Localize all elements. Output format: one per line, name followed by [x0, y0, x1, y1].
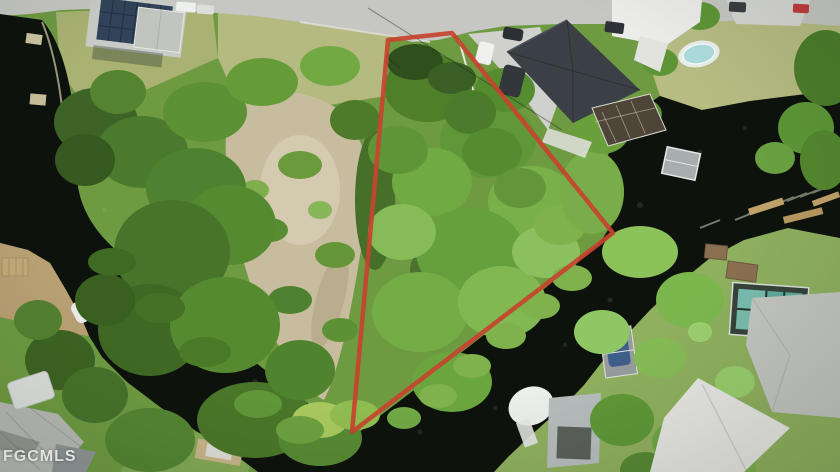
car-white: [197, 4, 215, 14]
neighbor-house-roof: [134, 7, 185, 52]
car-red: [793, 4, 809, 14]
aerial-photo-canvas: [0, 0, 840, 472]
bank-dock: [2, 258, 28, 276]
car-dark: [729, 2, 747, 13]
wood-dock: [704, 244, 727, 260]
aerial-photo: FGCMLS: [0, 0, 840, 472]
dock: [30, 93, 47, 105]
watermark: FGCMLS: [3, 448, 77, 466]
wood-dock: [726, 261, 758, 282]
car-white: [176, 1, 197, 12]
pergola: [556, 426, 591, 459]
